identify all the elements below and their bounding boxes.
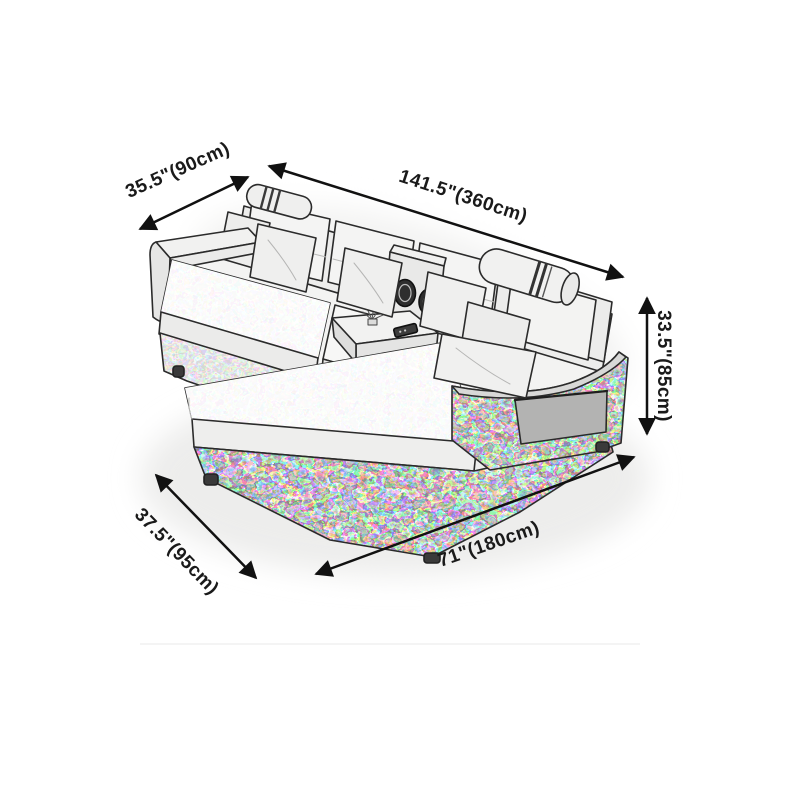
photo-edge-line <box>140 643 640 645</box>
dimension-label-overall-height: 33.5"(85cm) <box>652 310 674 422</box>
dimension-diagram: 35.5"(90cm) 141.5"(360cm) 33.5"(85cm) 37… <box>0 0 800 800</box>
sofa-sketch <box>0 0 800 800</box>
